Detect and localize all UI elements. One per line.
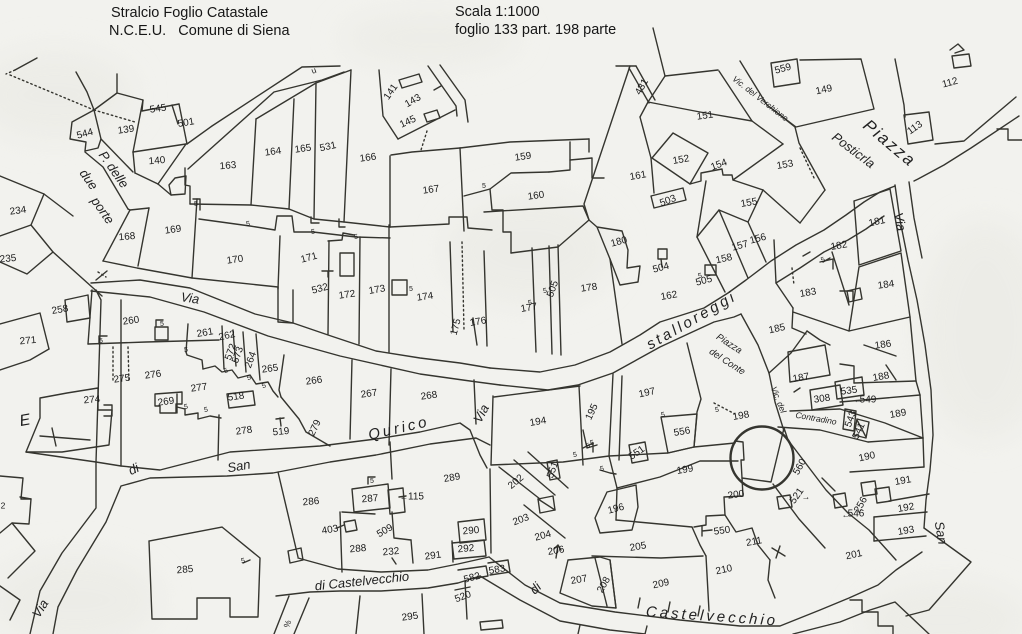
svg-text:Vic. del Verchione: Vic. del Verchione <box>731 74 791 124</box>
svg-text:5: 5 <box>184 404 189 412</box>
svg-text:165: 165 <box>294 142 312 155</box>
svg-text:San: San <box>226 457 251 476</box>
svg-text:176: 176 <box>469 315 488 329</box>
svg-text:287: 287 <box>361 493 379 505</box>
svg-text:197: 197 <box>638 386 657 400</box>
svg-text:260: 260 <box>122 314 140 327</box>
svg-text:Via: Via <box>891 211 910 232</box>
svg-text:205: 205 <box>629 540 648 554</box>
svg-text:5: 5 <box>482 183 486 190</box>
svg-text:140: 140 <box>148 155 166 167</box>
svg-text:Via: Via <box>470 402 492 425</box>
svg-text:276: 276 <box>144 368 162 381</box>
svg-text:152: 152 <box>672 153 691 167</box>
svg-text:157: 157 <box>731 239 750 254</box>
svg-text:288: 288 <box>349 543 367 555</box>
svg-text:154: 154 <box>709 157 729 173</box>
svg-text:5: 5 <box>370 478 374 485</box>
svg-text:520: 520 <box>453 589 473 605</box>
svg-text:178: 178 <box>580 281 598 294</box>
svg-text:518: 518 <box>227 390 245 403</box>
svg-text:265: 265 <box>261 362 279 375</box>
svg-text:559: 559 <box>774 62 793 77</box>
svg-text:403: 403 <box>321 523 340 537</box>
svg-text:198: 198 <box>732 409 751 423</box>
svg-text:foglio 133 part. 198 parte: foglio 133 part. 198 parte <box>455 22 616 38</box>
svg-text:5: 5 <box>99 338 103 345</box>
svg-text:501: 501 <box>177 116 196 130</box>
svg-text:275: 275 <box>113 372 131 385</box>
svg-text:295: 295 <box>401 610 419 623</box>
svg-text:550: 550 <box>713 524 731 537</box>
svg-text:277: 277 <box>190 381 208 394</box>
svg-text:Contradino: Contradino <box>795 410 838 427</box>
svg-text:264: 264 <box>243 350 259 370</box>
svg-text:5: 5 <box>246 374 252 382</box>
svg-text:551: 551 <box>627 444 647 463</box>
svg-text:115: 115 <box>408 492 424 503</box>
svg-text:Scala 1:1000: Scala 1:1000 <box>455 4 540 20</box>
svg-text:503: 503 <box>658 193 678 209</box>
svg-text:→: → <box>802 491 811 501</box>
svg-text:531: 531 <box>319 140 338 154</box>
svg-text:196: 196 <box>607 502 626 517</box>
svg-text:187: 187 <box>792 371 811 385</box>
svg-text:172: 172 <box>338 288 356 301</box>
svg-text:201: 201 <box>845 548 864 562</box>
svg-text:200: 200 <box>727 488 745 501</box>
svg-text:5: 5 <box>698 273 703 281</box>
svg-text:167: 167 <box>422 183 440 196</box>
svg-text:2: 2 <box>1 500 6 510</box>
svg-text:5: 5 <box>573 452 578 460</box>
svg-text:171: 171 <box>300 251 319 266</box>
svg-text:169: 169 <box>164 223 182 236</box>
svg-text:156: 156 <box>749 232 768 247</box>
svg-text:←: ← <box>854 394 863 404</box>
svg-text:164: 164 <box>264 145 282 158</box>
svg-text:112: 112 <box>941 76 960 91</box>
svg-text:274: 274 <box>83 394 101 406</box>
svg-text:5: 5 <box>409 286 413 293</box>
svg-text:159: 159 <box>514 150 532 163</box>
svg-text:145: 145 <box>398 113 418 130</box>
svg-text:Via: Via <box>180 289 200 306</box>
svg-text:271: 271 <box>19 335 37 347</box>
svg-text:190: 190 <box>858 450 877 464</box>
svg-text:209: 209 <box>652 577 671 591</box>
svg-text:143: 143 <box>403 92 423 110</box>
svg-text:504: 504 <box>652 261 671 276</box>
svg-text:141: 141 <box>382 82 401 102</box>
svg-text:5: 5 <box>590 440 595 448</box>
svg-text:166: 166 <box>359 151 377 164</box>
svg-text:Vic. del: Vic. del <box>769 385 789 415</box>
svg-text:291: 291 <box>424 549 442 562</box>
svg-text:San: San <box>932 520 951 545</box>
svg-text:153: 153 <box>776 158 795 172</box>
svg-text:290: 290 <box>462 525 480 537</box>
svg-text:Stralcio Foglio Catastale: Stralcio Foglio Catastale <box>111 5 268 21</box>
svg-text:5: 5 <box>715 407 720 415</box>
svg-text:113: 113 <box>905 119 925 137</box>
svg-text:194: 194 <box>529 415 548 429</box>
svg-text:207: 207 <box>570 573 589 587</box>
svg-text:308: 308 <box>813 392 831 405</box>
svg-text:170: 170 <box>226 253 244 266</box>
svg-text:204: 204 <box>534 529 553 544</box>
svg-text:%: % <box>281 618 293 629</box>
svg-text:184: 184 <box>877 278 895 291</box>
svg-text:Qurico: Qurico <box>367 413 431 444</box>
svg-text:189: 189 <box>889 407 908 421</box>
svg-text:di: di <box>126 460 143 478</box>
svg-text:5: 5 <box>246 221 251 228</box>
svg-text:Castelvecchio: Castelvecchio <box>645 603 778 629</box>
svg-text:183: 183 <box>799 286 818 300</box>
svg-text:532: 532 <box>311 282 330 297</box>
svg-text:286: 286 <box>302 496 320 508</box>
svg-text:234: 234 <box>9 204 27 217</box>
svg-text:210: 210 <box>715 563 734 577</box>
svg-text:158: 158 <box>715 252 734 266</box>
svg-text:269: 269 <box>157 395 175 408</box>
svg-text:161: 161 <box>629 169 648 183</box>
svg-text:266: 266 <box>305 374 323 387</box>
svg-text:porte: porte <box>88 193 118 227</box>
svg-text:185: 185 <box>768 322 787 336</box>
svg-text:267: 267 <box>360 387 378 400</box>
svg-text:162: 162 <box>660 289 679 303</box>
svg-text:232: 232 <box>382 546 400 558</box>
svg-text:292: 292 <box>457 543 475 555</box>
svg-text:186: 186 <box>874 338 892 351</box>
svg-text:5: 5 <box>194 201 198 208</box>
svg-text:199: 199 <box>676 463 695 477</box>
svg-text:N.C.E.U. Comune di Siena: N.C.E.U. Comune di Siena <box>109 23 290 39</box>
svg-text:5: 5 <box>204 407 209 415</box>
svg-text:5: 5 <box>261 382 267 390</box>
svg-text:163: 163 <box>219 160 237 172</box>
svg-text:151: 151 <box>696 109 714 122</box>
svg-text:174: 174 <box>416 290 434 303</box>
svg-text:268: 268 <box>420 389 438 402</box>
svg-text:181: 181 <box>868 215 887 229</box>
svg-text:5: 5 <box>184 347 188 354</box>
svg-text:279: 279 <box>307 418 324 438</box>
svg-text:182: 182 <box>830 239 849 253</box>
svg-text:545: 545 <box>149 102 167 115</box>
svg-text:195: 195 <box>584 402 601 422</box>
svg-text:285: 285 <box>176 564 194 576</box>
svg-text:519: 519 <box>272 426 290 438</box>
svg-text:5: 5 <box>354 234 359 241</box>
svg-text:191: 191 <box>894 474 913 488</box>
svg-text:203: 203 <box>511 512 531 528</box>
svg-text:←: ← <box>842 509 851 519</box>
svg-text:←: ← <box>400 491 409 501</box>
svg-text:193: 193 <box>897 524 916 538</box>
svg-text:E: E <box>18 411 32 430</box>
svg-text:5: 5 <box>600 466 605 474</box>
svg-text:208: 208 <box>595 575 613 595</box>
svg-text:155: 155 <box>740 196 759 210</box>
svg-text:556: 556 <box>673 425 692 439</box>
svg-text:261: 261 <box>196 326 215 340</box>
svg-text:235: 235 <box>0 253 17 265</box>
svg-text:206: 206 <box>547 544 566 558</box>
svg-text:139: 139 <box>117 123 135 136</box>
svg-text:256: 256 <box>852 495 870 515</box>
svg-text:582: 582 <box>463 571 482 586</box>
svg-text:149: 149 <box>815 83 834 97</box>
svg-text:278: 278 <box>235 424 253 437</box>
svg-text:173: 173 <box>368 283 387 297</box>
svg-text:5: 5 <box>661 412 666 420</box>
svg-text:583: 583 <box>488 563 507 577</box>
svg-text:5: 5 <box>160 321 164 328</box>
svg-text:due: due <box>77 166 102 192</box>
svg-text:289: 289 <box>443 471 462 485</box>
svg-text:168: 168 <box>118 231 136 243</box>
svg-text:175: 175 <box>449 317 464 336</box>
svg-text:5: 5 <box>311 229 316 236</box>
svg-text:211: 211 <box>745 535 763 549</box>
svg-text:5: 5 <box>241 558 246 566</box>
